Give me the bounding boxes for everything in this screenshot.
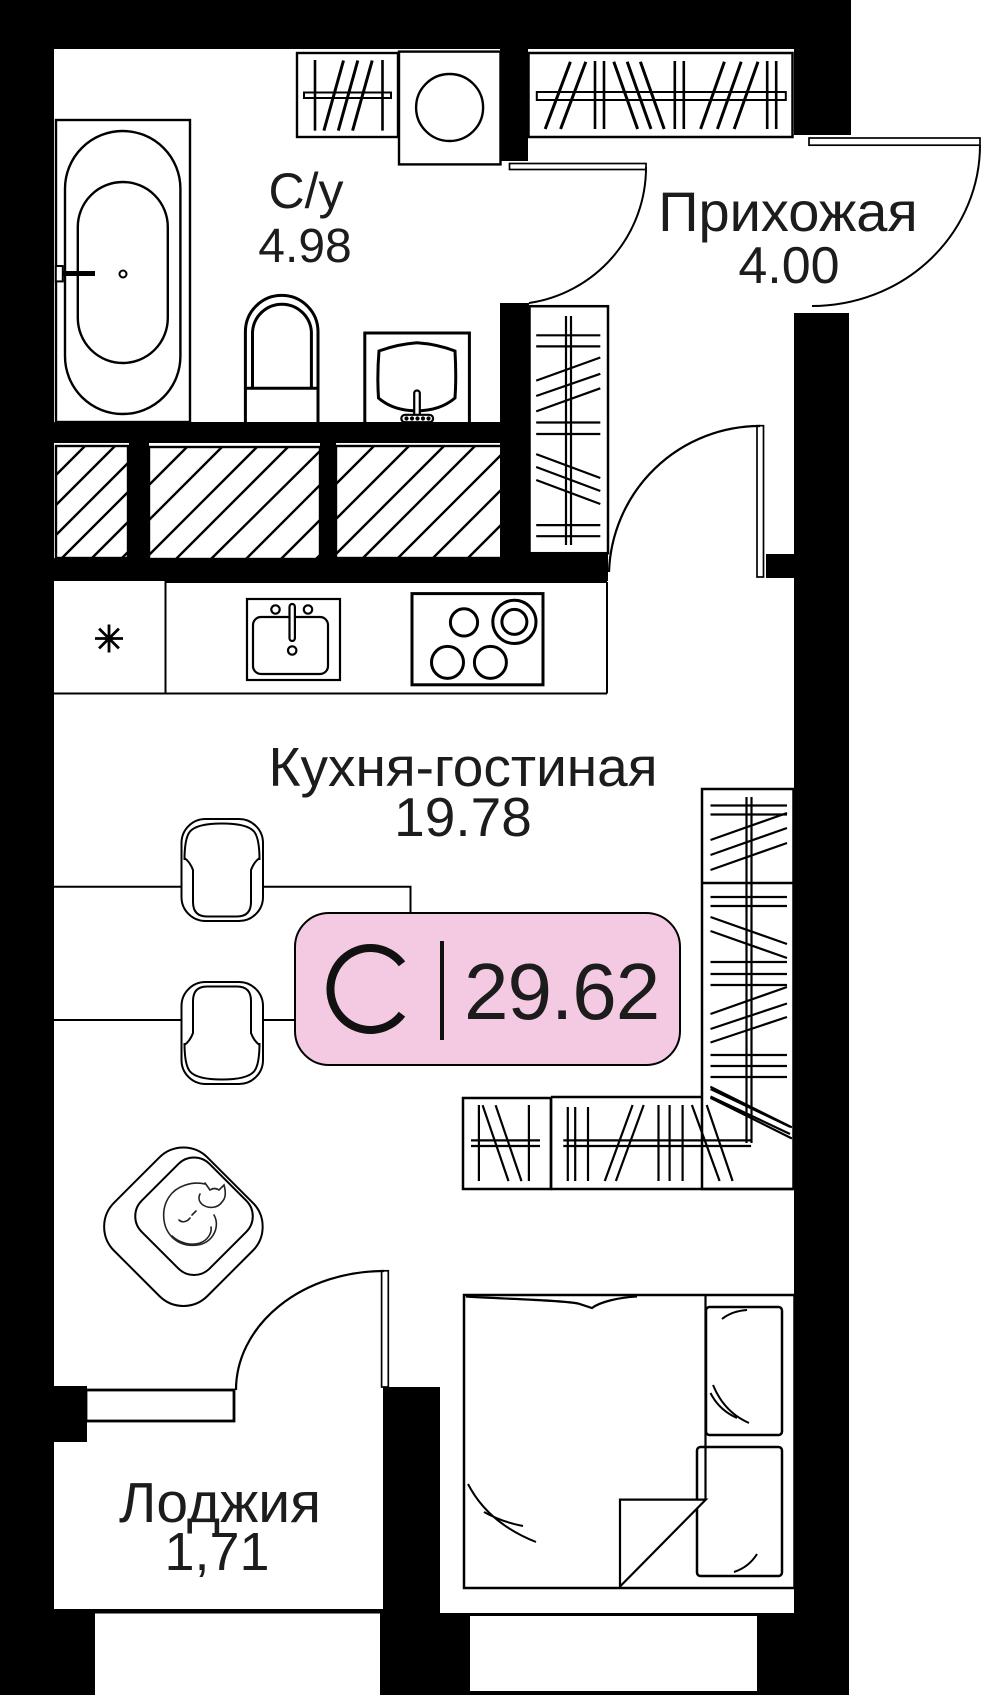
svg-text:1,71: 1,71 bbox=[164, 1522, 269, 1582]
svg-text:4.98: 4.98 bbox=[258, 220, 351, 273]
svg-text:Прихожая: Прихожая bbox=[658, 180, 918, 243]
svg-text:29.62: 29.62 bbox=[464, 947, 659, 1036]
svg-text:4.00: 4.00 bbox=[738, 237, 839, 295]
svg-text:19.78: 19.78 bbox=[394, 786, 532, 848]
svg-text:С/у: С/у bbox=[269, 163, 344, 219]
